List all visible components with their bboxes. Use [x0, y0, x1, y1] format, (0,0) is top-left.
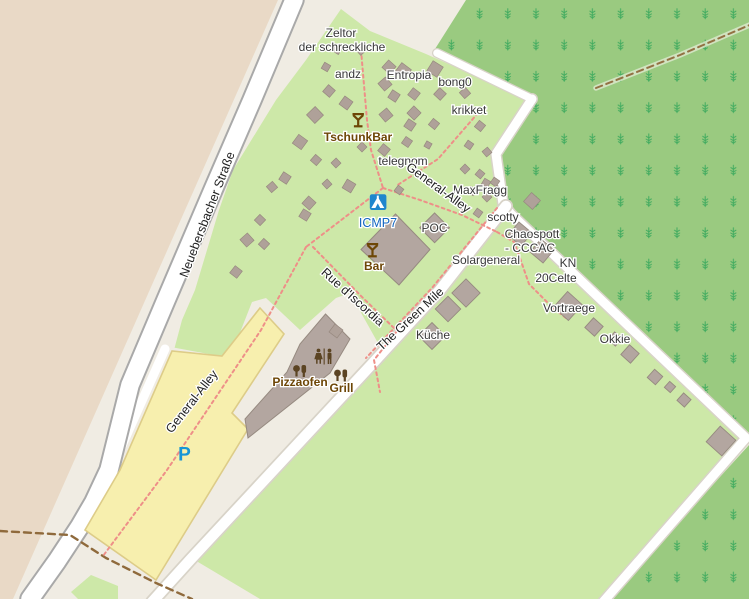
svg-text:scotty: scotty	[487, 210, 518, 224]
svg-text:Küche: Küche	[416, 328, 450, 342]
svg-text:20Celte: 20Celte	[535, 271, 577, 285]
svg-text:TschunkBar: TschunkBar	[324, 130, 393, 144]
svg-text:bong0: bong0	[438, 75, 472, 89]
svg-text:Vortraege: Vortraege	[543, 301, 595, 315]
svg-text:krikket: krikket	[452, 103, 487, 117]
svg-text:Grill: Grill	[329, 381, 353, 395]
svg-text:andz: andz	[335, 67, 361, 81]
svg-text:Zeltor: Zeltor	[326, 26, 357, 40]
svg-text:Pizzaofen: Pizzaofen	[272, 375, 327, 389]
svg-text:Okkie: Okkie	[600, 332, 631, 346]
svg-text:der schreckliche: der schreckliche	[299, 40, 386, 54]
svg-text:KN: KN	[560, 256, 577, 270]
svg-text:P: P	[178, 445, 191, 466]
svg-text:Solargeneral: Solargeneral	[452, 253, 520, 267]
svg-text:Chaospott: Chaospott	[505, 227, 560, 241]
svg-text:POC: POC	[421, 221, 447, 235]
svg-text:Entropia: Entropia	[387, 68, 432, 82]
svg-text:Bar: Bar	[364, 259, 384, 273]
svg-text:ICMP7: ICMP7	[359, 216, 397, 230]
